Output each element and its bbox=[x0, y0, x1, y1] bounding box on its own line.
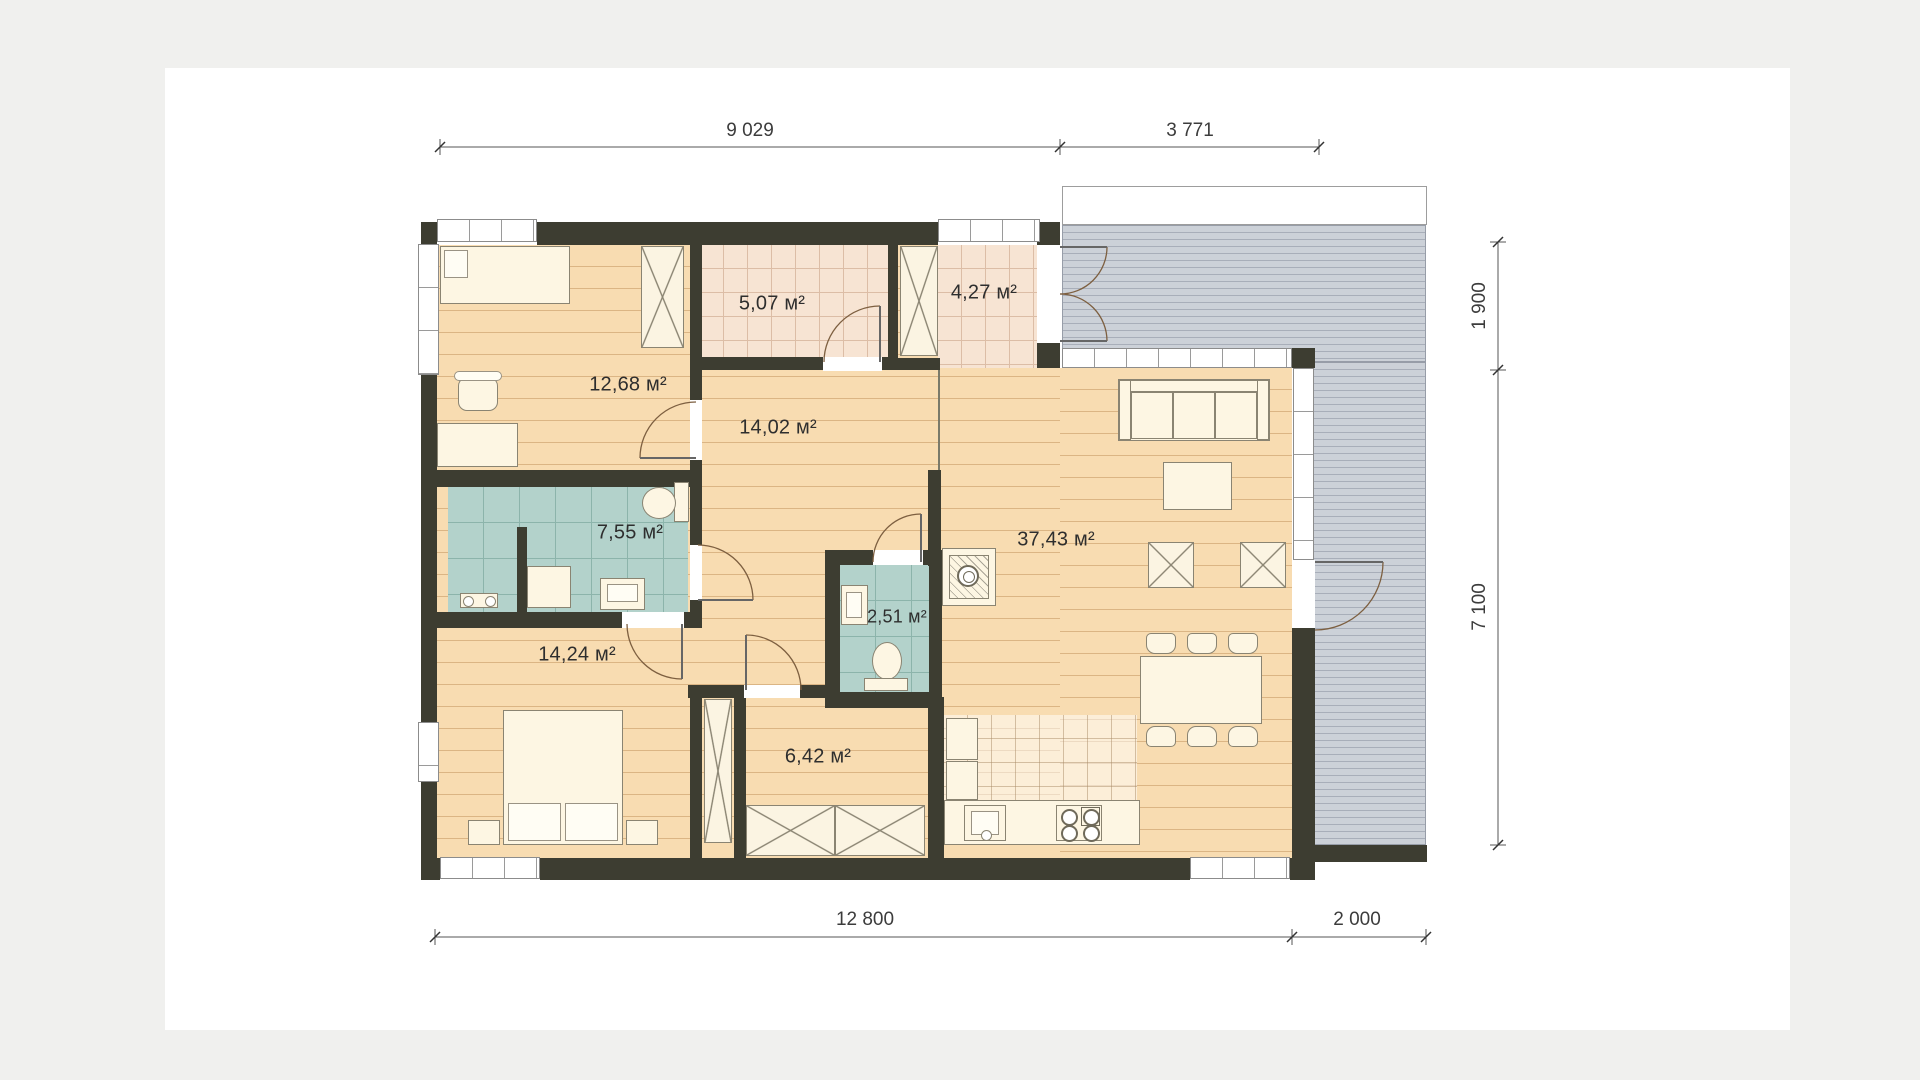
wc-sink-icon bbox=[841, 585, 868, 625]
room-area-label: 14,02 м² bbox=[739, 417, 817, 440]
room-area-label: 2,51 м² bbox=[867, 607, 927, 628]
wall-segment bbox=[537, 222, 938, 245]
wall-segment bbox=[825, 550, 873, 565]
stove-pot-icon bbox=[458, 377, 498, 411]
wall-segment bbox=[1292, 348, 1315, 368]
dimension-label: 3 771 bbox=[1166, 120, 1214, 142]
pillow-icon bbox=[444, 250, 468, 278]
dining-chair-icon bbox=[1187, 726, 1217, 747]
wall-segment bbox=[928, 697, 944, 858]
dining-chair-icon bbox=[1146, 726, 1176, 747]
room-area-label: 7,55 м² bbox=[597, 522, 663, 545]
burner-icon bbox=[1083, 825, 1100, 842]
fireplace-flue-inner bbox=[963, 571, 975, 583]
wardrobe-section bbox=[746, 805, 835, 856]
wall-segment bbox=[421, 858, 440, 880]
wardrobe-icon bbox=[641, 246, 684, 348]
room-area-label: 12,68 м² bbox=[589, 374, 667, 397]
faucet-set-icon bbox=[460, 593, 498, 608]
armchair-icon bbox=[1148, 542, 1194, 588]
window bbox=[938, 219, 1040, 242]
room-area-label: 37,43 м² bbox=[1017, 529, 1095, 552]
floor-boundary-line bbox=[938, 368, 940, 470]
wall-segment bbox=[421, 222, 437, 245]
burner-icon bbox=[1083, 809, 1100, 826]
dining-chair-icon bbox=[1228, 633, 1258, 654]
dining-chair-icon bbox=[1228, 726, 1258, 747]
sofa-icon bbox=[1118, 379, 1270, 441]
wall-segment bbox=[437, 470, 702, 487]
hall-wardrobe-icon bbox=[900, 246, 938, 356]
wall-segment bbox=[437, 612, 622, 628]
corridor-wardrobe-icon bbox=[704, 699, 732, 843]
coffee-table-icon bbox=[1163, 462, 1232, 510]
dimension-label: 1 900 bbox=[1469, 282, 1491, 330]
faucet-dot-icon bbox=[463, 596, 474, 607]
wall-segment bbox=[825, 692, 942, 708]
room-area-label: 14,24 м² bbox=[538, 644, 616, 667]
dimension-label: 12 800 bbox=[836, 909, 894, 931]
wall-segment bbox=[421, 375, 437, 722]
pillow-icon bbox=[508, 803, 561, 841]
entry-tile-floor bbox=[938, 245, 1037, 368]
wall-segment bbox=[690, 697, 702, 858]
roof-outline bbox=[1062, 186, 1427, 225]
window bbox=[418, 722, 439, 782]
wall-segment bbox=[540, 858, 1190, 880]
wall-segment bbox=[690, 357, 823, 370]
inner-hall-wardrobe-icon bbox=[746, 805, 925, 856]
room-area-label: 5,07 м² bbox=[739, 293, 805, 316]
door-opening bbox=[1292, 560, 1315, 628]
toilet-bowl-icon bbox=[642, 487, 676, 519]
fireplace-icon bbox=[942, 548, 996, 606]
wall-segment bbox=[883, 358, 940, 370]
window bbox=[1293, 368, 1314, 560]
sofa-cushion bbox=[1131, 392, 1173, 439]
floor-plan: 12,68 м² 5,07 м² 4,27 м² 14,02 м² 7,55 м… bbox=[0, 0, 1920, 1080]
sink-basin-icon bbox=[607, 584, 638, 602]
wall-segment bbox=[1292, 845, 1427, 862]
dining-chair-icon bbox=[1187, 633, 1217, 654]
wardrobe-section bbox=[835, 805, 925, 856]
wall-segment bbox=[684, 612, 702, 628]
door-opening bbox=[1037, 245, 1060, 343]
sink-icon bbox=[600, 578, 645, 610]
double-bed-icon bbox=[503, 710, 623, 845]
dimension-label: 2 000 bbox=[1333, 909, 1381, 931]
terrace-deck-side bbox=[1313, 362, 1426, 845]
wc-toilet-tank-icon bbox=[864, 678, 908, 691]
nightstand-icon bbox=[626, 820, 658, 845]
door-opening bbox=[622, 612, 684, 628]
terrace-deck-top bbox=[1062, 225, 1426, 362]
wall-segment bbox=[1292, 628, 1315, 858]
sofa-cushion bbox=[1173, 392, 1215, 439]
wall-segment bbox=[800, 685, 828, 698]
wall-segment bbox=[517, 527, 527, 612]
dimension-label: 9 029 bbox=[726, 120, 774, 142]
burner-icon bbox=[1061, 825, 1078, 842]
sofa-armrest bbox=[1119, 380, 1131, 440]
dresser-icon bbox=[437, 423, 518, 467]
window bbox=[1190, 857, 1290, 879]
fridge-icon bbox=[946, 718, 978, 760]
toilet-tank-icon bbox=[674, 482, 689, 522]
door-opening bbox=[690, 545, 702, 600]
window bbox=[440, 857, 540, 879]
window bbox=[1062, 348, 1292, 368]
wall-segment bbox=[929, 565, 942, 708]
pillow-icon bbox=[565, 803, 618, 841]
shower-cabinet-icon bbox=[527, 566, 571, 608]
sofa-cushion bbox=[1215, 392, 1257, 439]
faucet-dot-icon bbox=[485, 596, 496, 607]
kitchen-faucet-icon bbox=[981, 830, 992, 841]
window bbox=[418, 244, 439, 375]
wc-toilet-bowl-icon bbox=[872, 642, 902, 680]
wall-segment bbox=[1037, 343, 1060, 368]
wall-segment bbox=[1037, 222, 1060, 245]
door-opening bbox=[690, 400, 702, 460]
kitchen-sink-icon bbox=[964, 805, 1006, 841]
dining-chair-icon bbox=[1146, 633, 1176, 654]
wall-segment bbox=[690, 245, 702, 400]
door-opening bbox=[873, 550, 923, 565]
nightstand-icon bbox=[468, 820, 500, 845]
door-opening bbox=[744, 685, 800, 698]
cooktop-icon bbox=[1056, 805, 1102, 841]
wall-segment bbox=[734, 697, 746, 858]
dimension-label: 7 100 bbox=[1469, 583, 1491, 631]
room-area-label: 6,42 м² bbox=[785, 746, 851, 769]
sofa-armrest bbox=[1257, 380, 1269, 440]
wc-sink-basin-icon bbox=[846, 592, 862, 618]
wall-segment bbox=[888, 245, 898, 370]
door-opening bbox=[823, 357, 882, 371]
single-bed-icon bbox=[440, 246, 570, 304]
room-area-label: 4,27 м² bbox=[951, 282, 1017, 305]
window bbox=[437, 219, 537, 242]
dining-table-icon bbox=[1140, 656, 1262, 724]
armchair-icon bbox=[1240, 542, 1286, 588]
sofa-back bbox=[1119, 380, 1269, 392]
pot-lid-icon bbox=[454, 371, 502, 381]
wall-segment bbox=[923, 550, 942, 565]
burner-icon bbox=[1061, 809, 1078, 826]
kitchen-cabinet-icon bbox=[946, 761, 978, 800]
